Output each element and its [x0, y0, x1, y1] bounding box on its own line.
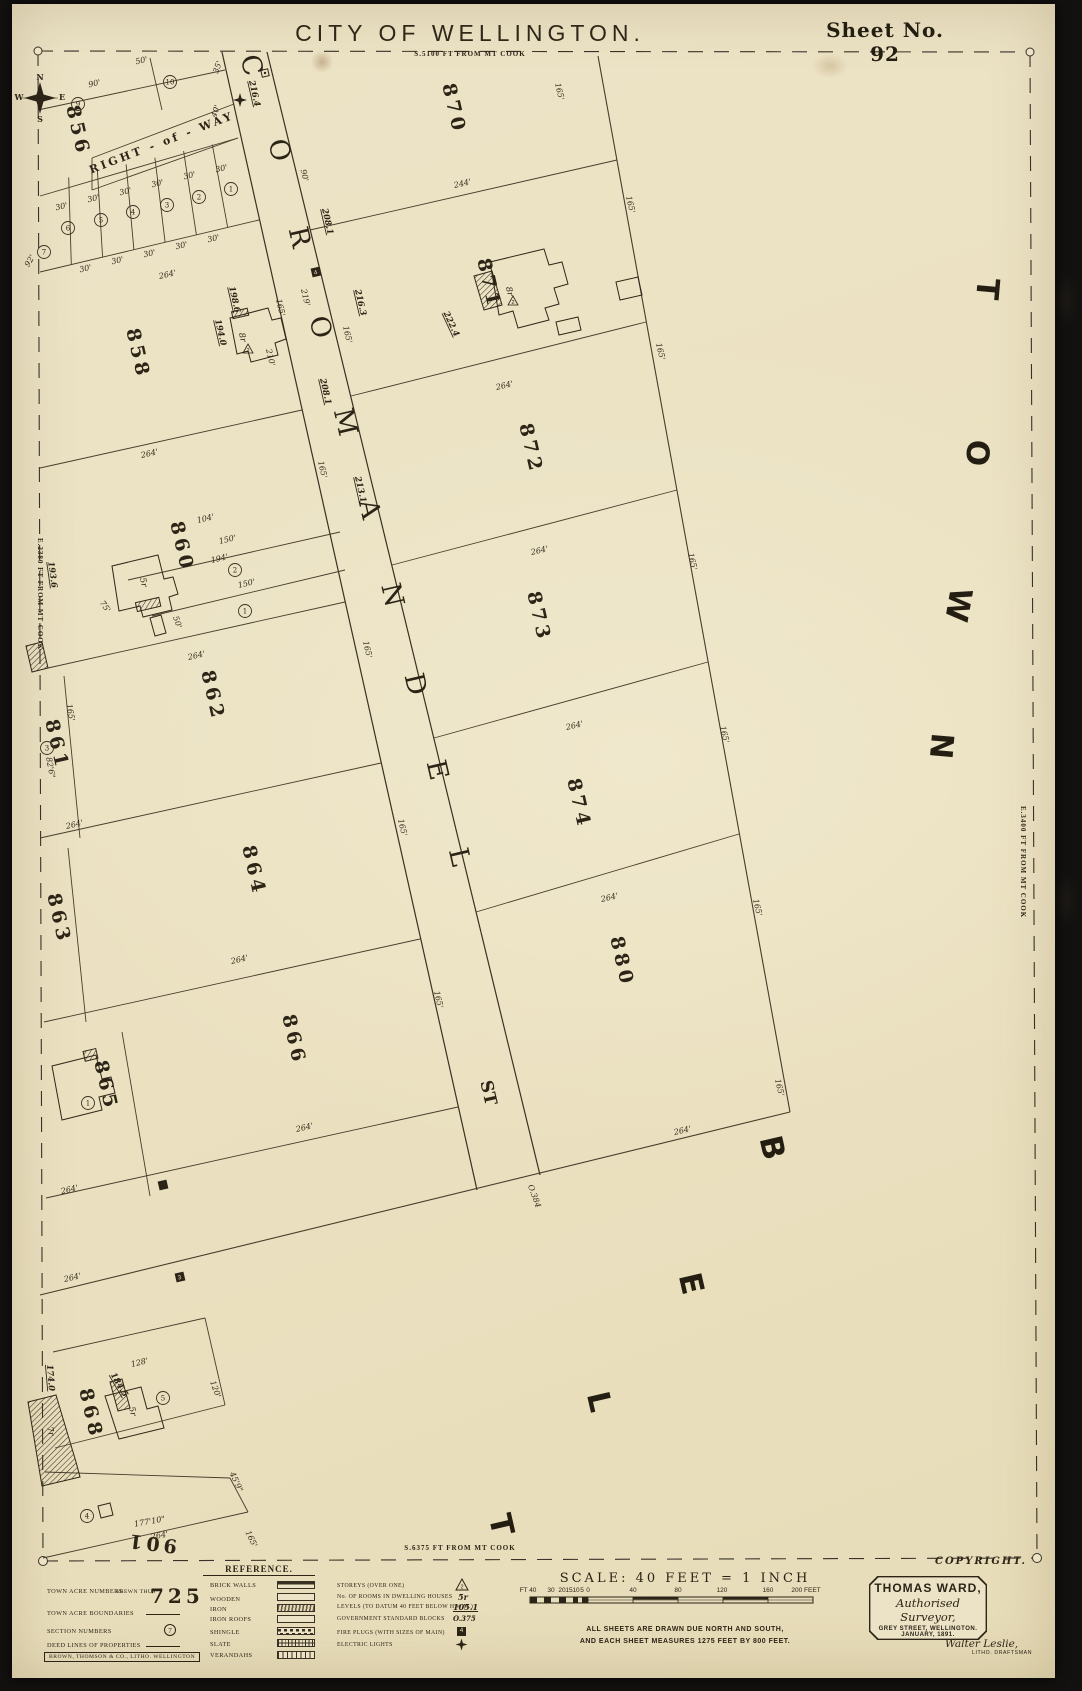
acre-number-873: 873: [522, 589, 555, 644]
town-belt-letter: O: [958, 438, 996, 467]
electric-light-marker: [233, 93, 247, 107]
scale-note-1: ALL SHEETS ARE DRAWN DUE NORTH AND SOUTH…: [530, 1626, 840, 1633]
sheet-number: Sheet No. 92: [820, 18, 950, 66]
dimension-label: 264': [186, 649, 206, 662]
dimension-label: 165': [751, 898, 764, 917]
map-labels: 8568588608618628638648658668688708718728…: [14, 52, 1006, 1594]
dimension-label: 30': [174, 240, 188, 252]
legend-rooms: No. OF ROOMS IN DWELLING HOUSES: [337, 1594, 452, 1600]
dimension-label: 30': [150, 178, 164, 190]
town-belt-letter: N: [922, 731, 960, 760]
legend-fire-plugs: FIRE PLUGS (WITH SIZES OF MAIN): [337, 1630, 445, 1636]
dimension-label: 150': [237, 577, 256, 590]
street-name-letter: A: [352, 495, 387, 524]
scale-tick: 80: [674, 1587, 682, 1594]
dimension-label: 264': [494, 379, 514, 392]
acre-number-862: 862: [196, 668, 229, 723]
slate-swatch: [277, 1639, 315, 1647]
scale-heading: SCALE: 40 FEET = 1 INCH: [545, 1571, 825, 1586]
surveyor-name: THOMAS WARD,: [870, 1581, 985, 1595]
compass-south: S: [37, 114, 43, 124]
acre-number-880: 880: [605, 934, 638, 989]
levels-symbol: 105.1: [453, 1602, 478, 1612]
legend-heading: REFERENCE.: [203, 1564, 315, 1576]
town-belt-letter: L: [579, 1388, 619, 1415]
legend-deed-lines: DEED LINES OF PROPERTIES: [47, 1642, 141, 1649]
dimension-label: 30': [86, 193, 100, 205]
acre-number-870: 870: [437, 81, 470, 136]
section-number: 4: [85, 1512, 90, 1520]
dimension-label: 219': [299, 287, 312, 307]
section-number: 1: [86, 1099, 90, 1107]
street-name-letter: C: [234, 52, 269, 81]
section-number: 6: [66, 224, 71, 232]
dimension-label: 30': [110, 255, 124, 267]
legend-shingle: SHINGLE: [210, 1629, 240, 1636]
shingle-swatch: [277, 1627, 315, 1635]
dimension-label: 75': [98, 599, 112, 614]
dimension-label: 244': [452, 177, 472, 190]
draftsman-name: Walter Leslie,: [945, 1638, 1035, 1650]
outbuilding-871: [556, 317, 581, 335]
dimension-label: 165': [718, 725, 731, 744]
dimension-label: 150': [218, 533, 237, 546]
town-belt-letter: E: [671, 1269, 711, 1298]
dimension-label: 165': [654, 342, 667, 361]
acre-number-860: 860: [165, 519, 198, 574]
iron-swatch: [277, 1604, 315, 1612]
acre-number-863: 863: [42, 891, 75, 946]
legend-verandahs: VERANDAHS: [210, 1652, 252, 1659]
dimension-label: 264': [229, 953, 249, 966]
dimension-label: 165': [686, 552, 699, 571]
map-drawing: 8568588608618628638648658668688708718728…: [0, 0, 1082, 1691]
section-number: 2: [197, 193, 201, 201]
street-name-letter: E: [420, 757, 455, 785]
copyright-label: COPYRIGHT.: [935, 1556, 1045, 1567]
photo-background: 8568588608618628638648658668688708718728…: [0, 0, 1082, 1691]
dimension-label: 165': [243, 1529, 259, 1549]
edge-label-south: S.6375 FT FROM MT COOK: [375, 1544, 545, 1552]
section-number: 7: [42, 248, 46, 256]
dimension-label: 165': [396, 818, 409, 837]
dimension-label: 45'9": [227, 1470, 245, 1494]
town-belt-letter: T: [481, 1510, 521, 1539]
level-label: 208.1: [317, 376, 333, 405]
title-datum-note: S.5100 FT FROM MT COOK: [370, 50, 570, 58]
acre-number-866: 866: [277, 1012, 310, 1067]
street-name-letter: L: [442, 845, 477, 871]
legend-slate: SLATE: [210, 1641, 231, 1648]
scale-tick: 0: [586, 1587, 590, 1594]
legend-iron: IRON: [210, 1606, 227, 1613]
storeys-count: 2: [246, 348, 249, 354]
street-name-letter: D: [398, 670, 434, 700]
section-number: 3: [165, 201, 169, 209]
outbuilding-901: [98, 1503, 113, 1518]
building-belt-corner: [28, 1395, 80, 1486]
street-lines: [222, 52, 540, 1190]
surveyor-cartouche: THOMAS WARD, Authorised Surveyor, GREY S…: [869, 1576, 987, 1640]
dimension-label: 30': [142, 248, 156, 260]
dimension-label: 30': [118, 186, 132, 198]
level-label: 194.0: [212, 318, 228, 346]
dimension-label: 30': [214, 163, 228, 175]
dimension-label: 264': [529, 544, 549, 557]
acre-number-856: 856: [61, 103, 94, 158]
dimension-label: 165': [316, 460, 329, 479]
section-number: 9: [76, 100, 80, 108]
scale-tick: 160: [763, 1587, 774, 1594]
dimension-label: 177'10": [133, 1514, 165, 1528]
dimension-label: 120': [208, 1379, 222, 1398]
level-label: 216.3: [352, 287, 368, 316]
scale-tick: 5: [580, 1587, 584, 1594]
legend-town-acre-boundaries: TOWN ACRE BOUNDARIES: [47, 1610, 134, 1617]
edge-label-west: E.2380 FT FROM MT COOK: [36, 538, 44, 658]
dimension-label: 194': [210, 552, 229, 565]
level-label: 193.6: [45, 561, 59, 589]
dimension-label: 264': [564, 719, 584, 732]
dimension-label: 264': [672, 1124, 692, 1137]
legend-iron-roofs: IRON ROOFS: [210, 1616, 251, 1623]
scale-tick: 200 FEET: [791, 1587, 820, 1594]
legend-storeys: STOREYS (OVER ONE): [337, 1583, 404, 1589]
scale-tick: 10: [572, 1587, 580, 1594]
level-label: 222.4: [440, 309, 461, 338]
dimension-label: 90': [87, 78, 101, 90]
section-number: 5: [99, 216, 103, 224]
scale-tick: 30: [547, 1587, 555, 1594]
rooms-symbol: 5r: [458, 1592, 468, 1602]
street-name-letter: N: [374, 580, 410, 612]
dimension-label: 92': [23, 253, 37, 268]
edge-label-east: E.3400 FT FROM MT COOK: [1019, 806, 1027, 926]
compass-west: W: [14, 92, 25, 102]
level-label: 174.0: [44, 1364, 56, 1391]
dimension-label: 264': [59, 1183, 79, 1196]
legend-brick-walls: BRICK WALLS: [210, 1582, 256, 1589]
legend-govt-blocks: GOVERNMENT STANDARD BLOCKS: [337, 1616, 445, 1622]
dimension-label: O.384: [526, 1183, 543, 1209]
scale-tick: 120: [717, 1587, 728, 1594]
dimension-label: 165': [341, 325, 354, 344]
scale-bar: [530, 1597, 813, 1603]
storeys-count: 2: [511, 300, 514, 306]
dimension-label: 30': [206, 233, 220, 245]
town-belt-letter: B: [752, 1132, 792, 1163]
scale-note-2: AND EACH SHEET MEASURES 1275 FEET BY 800…: [530, 1638, 840, 1645]
street-name-letter: O: [302, 313, 338, 343]
dimension-label: 264': [139, 447, 159, 460]
compass-rose: [22, 82, 58, 114]
compass-east: E: [59, 92, 65, 102]
page-title: CITY OF WELLINGTON.: [290, 20, 650, 47]
acre-number-872: 872: [514, 421, 547, 476]
street-name-letter: M: [327, 405, 364, 441]
dimension-label: 30': [78, 263, 92, 275]
town-belt-letter: W: [937, 585, 978, 625]
dimension-label: 104': [196, 512, 215, 525]
acre-number-858: 858: [121, 326, 154, 381]
dimension-label: 264': [294, 1121, 314, 1134]
section-number: 5: [161, 1394, 165, 1402]
dimension-label: 264': [599, 891, 619, 904]
dimension-label: 165': [432, 990, 445, 1009]
dimension-label: 165': [553, 82, 566, 101]
boundary-line-swatch: [146, 1614, 180, 1615]
section-number: 10: [166, 78, 175, 86]
verandahs-swatch: [277, 1651, 315, 1659]
dimension-label: 165': [65, 703, 77, 722]
street-name-letter: R: [282, 224, 317, 253]
legend-town-acre-numbers: TOWN ACRE NUMBERS: [47, 1588, 123, 1595]
section-number: 4: [131, 208, 136, 216]
acre-number-874: 874: [562, 776, 595, 831]
government-block-dot: [264, 72, 266, 74]
section-number: 1: [243, 607, 247, 615]
legend-electric-lights: ELECTRIC LIGHTS: [337, 1642, 393, 1648]
level-label: 216.4: [246, 78, 262, 107]
wooden-swatch: [277, 1593, 315, 1601]
electric-light-symbol: [455, 1638, 468, 1651]
house-rooms-label: 5r: [137, 577, 149, 589]
section-number: 1: [229, 185, 233, 193]
draftsman-role: LITHO. DRAFTSMAN: [972, 1650, 1052, 1656]
building-860-outbuilding: [150, 615, 166, 636]
dimension-label: 30': [54, 201, 68, 213]
storeys-symbol: 2: [455, 1578, 469, 1591]
acre-number-868: 868: [74, 1386, 107, 1441]
dimension-label: 165': [361, 640, 374, 659]
iron-roofs-swatch: [277, 1615, 315, 1623]
dimension-label: 264': [62, 1271, 82, 1284]
scale-tick: 40: [629, 1587, 637, 1594]
legend-section-numbers: SECTION NUMBERS: [47, 1628, 112, 1635]
section-number-symbol: 7: [164, 1624, 176, 1636]
dimension-label: 210': [264, 347, 277, 367]
section-number: 3: [45, 744, 49, 752]
scale-tick: FT 40: [520, 1587, 537, 1594]
fire-plug-symbol: 4: [457, 1627, 466, 1636]
street-name-letter: ST: [475, 1078, 500, 1107]
dimension-label: 50': [171, 615, 184, 630]
legend-wooden: WOODEN: [210, 1596, 240, 1603]
dimension-label: 165': [274, 298, 287, 317]
brick-walls-swatch: [277, 1581, 315, 1589]
house-rooms-label: 5r: [126, 1406, 138, 1418]
level-label: 213.1: [352, 474, 368, 503]
parcel-lines: [38, 56, 790, 1558]
outbuilding-870: [616, 277, 642, 300]
house-rooms-label: 8r: [236, 332, 248, 344]
building-865-verandah: [83, 1049, 98, 1062]
dimension-label: 264': [157, 268, 177, 281]
dimension-label: 90': [299, 168, 311, 182]
street-name-letter: O: [261, 136, 297, 166]
level-label: 208.1: [319, 206, 335, 235]
survey-boundary: [38, 51, 1037, 1561]
fire-plug-marker: [158, 1180, 169, 1191]
svg-text:2: 2: [460, 1585, 463, 1591]
dimension-label: 30': [182, 170, 196, 182]
building-860-verandah: [135, 597, 160, 611]
lithographer-credit: BROWN, THOMSON & CO., LITHO. WELLINGTON: [44, 1652, 200, 1662]
section-number: 2: [233, 566, 237, 574]
dimension-label: 128': [130, 1356, 149, 1369]
govt-blocks-symbol: O.375: [453, 1614, 476, 1623]
acre-number-864: 864: [237, 843, 270, 898]
surveyor-title: Authorised Surveyor,: [870, 1596, 985, 1624]
compass-north: N: [36, 72, 43, 82]
dimension-label: 50': [134, 55, 148, 67]
town-belt-letter: T: [968, 277, 1006, 301]
legend-acre-number-sample: 725: [150, 1584, 204, 1608]
level-label: 198.6: [226, 285, 242, 313]
dimension-label: 35': [211, 60, 224, 75]
deed-line-swatch: [146, 1646, 180, 1647]
